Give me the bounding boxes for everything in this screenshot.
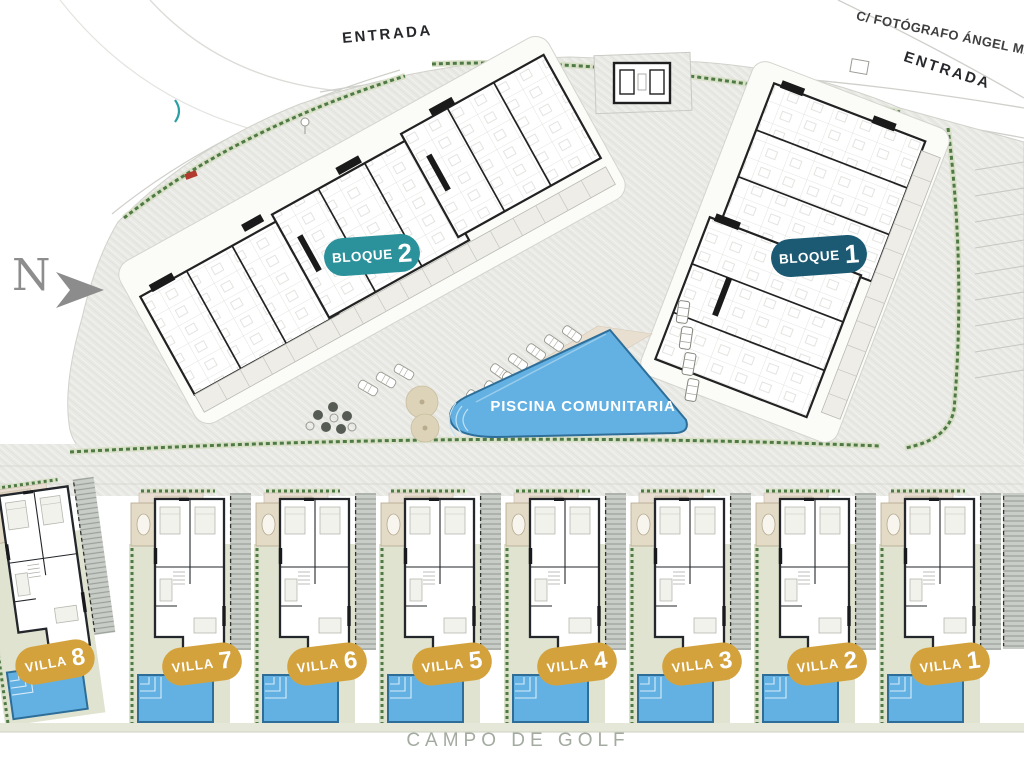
- villa-5-number: 5: [468, 648, 484, 673]
- bloque-1-number: 1: [844, 240, 860, 267]
- north-label: N: [12, 250, 51, 301]
- bloque-1-badge[interactable]: BLOQUE 1: [770, 234, 868, 279]
- villa-4-label: VILLA: [546, 655, 590, 675]
- villa-2-label: VILLA: [796, 655, 840, 675]
- site-plan-drawing: [0, 0, 1024, 768]
- villa-4-number: 4: [593, 648, 609, 673]
- villa-1-number: 1: [966, 648, 982, 673]
- villa-7-number: 7: [218, 648, 234, 673]
- golf-course-label: CAMPO DE GOLF: [360, 730, 676, 752]
- utility-structure: [594, 52, 692, 113]
- bloque-2-badge[interactable]: BLOQUE 2: [323, 233, 421, 278]
- site-plan: C/ FOTÓGRAFO ÁNGEL MARTÍN ENTRADA ENTRAD…: [0, 0, 1024, 768]
- villa-6-number: 6: [343, 648, 359, 673]
- villa-3-number: 3: [718, 648, 734, 673]
- villa-8-label: VILLA: [24, 653, 69, 675]
- villa-2-number: 2: [843, 648, 859, 673]
- bloque-2-number: 2: [397, 239, 413, 266]
- villa-3-label: VILLA: [671, 655, 715, 675]
- bloque-2-label: BLOQUE: [331, 246, 393, 265]
- small-structure: [850, 59, 869, 75]
- villa-5-label: VILLA: [421, 655, 465, 675]
- villa-6-label: VILLA: [296, 655, 340, 675]
- lower-road: [0, 444, 1024, 496]
- communal-pool-label: PISCINA COMUNITARIA: [468, 398, 698, 415]
- bloque-1-label: BLOQUE: [778, 247, 840, 266]
- villa-8-number: 8: [70, 645, 87, 671]
- villa-7-label: VILLA: [171, 655, 215, 675]
- villa-1-label: VILLA: [919, 655, 963, 675]
